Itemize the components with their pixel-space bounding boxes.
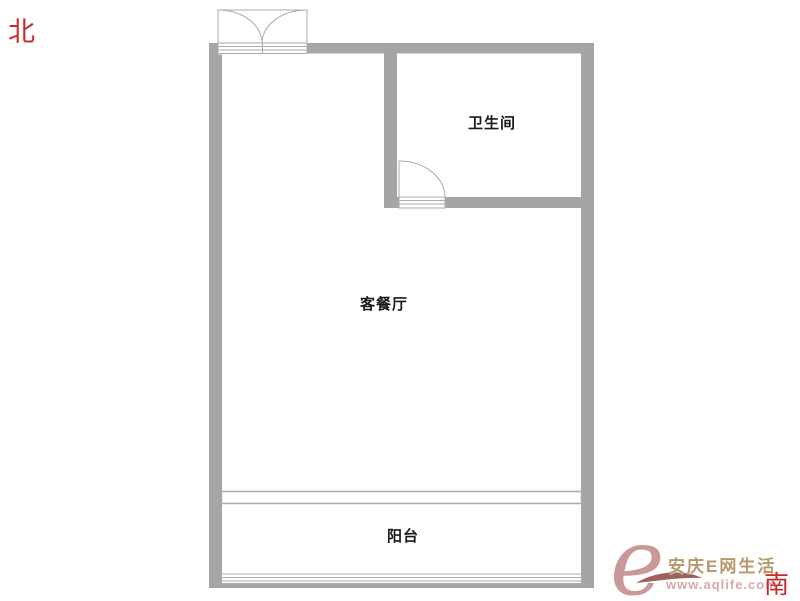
wall-right: [581, 43, 594, 588]
room-label-balcony: 阳台: [358, 525, 448, 546]
balcony-outer-window: [222, 574, 582, 584]
compass-north-label: 北: [8, 10, 35, 49]
wall-bottom-sill: [209, 584, 594, 589]
room-label-living-dining: 客餐厅: [339, 293, 429, 314]
wall-bathroom-left: [384, 43, 397, 208]
entry-double-door-icon: [218, 10, 307, 54]
bathroom-door-icon: [399, 161, 445, 208]
room-label-bathroom: 卫生间: [447, 112, 537, 133]
compass-south-label: 南: [764, 565, 789, 601]
bathroom-door-opening: [399, 197, 445, 209]
balcony-divider-window: [222, 492, 582, 504]
floor-plan-page: e 北 南 卫生间 客餐厅 阳台 安庆E网生活 www.aqlife.com: [0, 0, 800, 600]
wall-left: [209, 43, 222, 588]
watermark-logo-letter: e: [610, 509, 664, 600]
